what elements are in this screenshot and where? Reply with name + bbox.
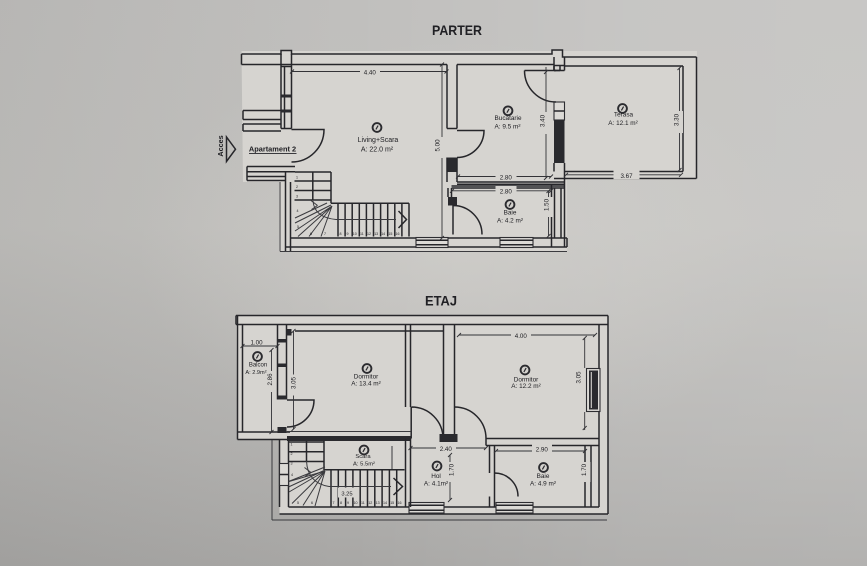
svg-text:4.00: 4.00 bbox=[515, 333, 528, 340]
svg-text:4: 4 bbox=[291, 473, 293, 477]
svg-text:4: 4 bbox=[297, 209, 299, 213]
svg-text:3.30: 3.30 bbox=[674, 113, 681, 126]
svg-text:Terasa: Terasa bbox=[614, 112, 634, 119]
svg-text:Hol: Hol bbox=[431, 473, 441, 480]
svg-text:7: 7 bbox=[324, 232, 326, 236]
svg-text:A: 9.5 m²: A: 9.5 m² bbox=[495, 124, 521, 131]
svg-text:2.40: 2.40 bbox=[440, 446, 453, 453]
svg-text:11: 11 bbox=[360, 232, 364, 236]
svg-text:10: 10 bbox=[354, 501, 358, 505]
svg-text:3: 3 bbox=[296, 195, 298, 199]
svg-text:14: 14 bbox=[381, 232, 385, 236]
svg-text:3.05: 3.05 bbox=[576, 371, 583, 384]
svg-text:2.80: 2.80 bbox=[500, 189, 513, 196]
svg-text:Apartament 2: Apartament 2 bbox=[249, 144, 296, 153]
svg-text:1.70: 1.70 bbox=[581, 463, 588, 476]
svg-text:2.86: 2.86 bbox=[267, 373, 274, 386]
svg-text:2: 2 bbox=[296, 185, 298, 189]
svg-text:A: 12.1 m²: A: 12.1 m² bbox=[608, 120, 637, 127]
svg-text:ETAJ: ETAJ bbox=[425, 293, 457, 309]
svg-text:4.40: 4.40 bbox=[364, 70, 377, 77]
svg-text:14: 14 bbox=[383, 501, 387, 505]
svg-text:1: 1 bbox=[296, 176, 298, 180]
svg-text:A: 5.5m²: A: 5.5m² bbox=[353, 461, 375, 467]
svg-text:A: 13.4 m²: A: 13.4 m² bbox=[351, 381, 380, 388]
svg-text:5: 5 bbox=[297, 225, 299, 229]
svg-text:Scara: Scara bbox=[355, 454, 371, 460]
svg-text:15: 15 bbox=[388, 232, 392, 236]
svg-text:A: 12.2 m²: A: 12.2 m² bbox=[511, 383, 540, 390]
svg-text:A: 22.0 m²: A: 22.0 m² bbox=[361, 147, 394, 154]
svg-text:12: 12 bbox=[368, 501, 372, 505]
svg-text:2: 2 bbox=[291, 452, 293, 456]
svg-text:1.00: 1.00 bbox=[250, 339, 263, 346]
svg-text:5.00: 5.00 bbox=[435, 139, 442, 152]
svg-text:A: 2.9m²: A: 2.9m² bbox=[245, 370, 266, 376]
svg-text:3.40: 3.40 bbox=[540, 114, 547, 127]
svg-text:PARTER: PARTER bbox=[432, 22, 482, 38]
svg-text:5: 5 bbox=[297, 501, 299, 505]
svg-text:3.05: 3.05 bbox=[291, 376, 298, 389]
svg-text:1.50: 1.50 bbox=[544, 198, 551, 211]
svg-text:9: 9 bbox=[347, 232, 349, 236]
svg-text:Dormitor: Dormitor bbox=[354, 374, 379, 381]
svg-text:A: 4.1m²: A: 4.1m² bbox=[424, 481, 448, 488]
svg-text:Baie: Baie bbox=[537, 473, 550, 480]
svg-text:8: 8 bbox=[340, 501, 342, 505]
svg-text:Acces: Acces bbox=[216, 135, 225, 156]
svg-text:1.70: 1.70 bbox=[449, 463, 456, 476]
svg-text:1: 1 bbox=[291, 443, 293, 447]
svg-text:3.25: 3.25 bbox=[341, 492, 352, 498]
svg-text:9: 9 bbox=[347, 501, 349, 505]
svg-text:Baie: Baie bbox=[504, 210, 517, 217]
svg-text:3: 3 bbox=[291, 462, 293, 466]
svg-text:13: 13 bbox=[374, 232, 378, 236]
svg-text:16: 16 bbox=[396, 232, 400, 236]
svg-text:10: 10 bbox=[353, 232, 357, 236]
svg-text:6: 6 bbox=[310, 232, 312, 236]
svg-text:A: 4.2 m²: A: 4.2 m² bbox=[497, 218, 523, 225]
svg-text:13: 13 bbox=[376, 501, 380, 505]
svg-text:6: 6 bbox=[311, 501, 313, 505]
svg-text:7: 7 bbox=[333, 501, 335, 505]
svg-text:3.67: 3.67 bbox=[620, 173, 633, 180]
svg-text:Balcon: Balcon bbox=[249, 363, 267, 369]
svg-text:Bucatarie: Bucatarie bbox=[495, 115, 522, 122]
svg-text:15: 15 bbox=[390, 501, 394, 505]
svg-text:8: 8 bbox=[340, 232, 342, 236]
svg-text:2.80: 2.80 bbox=[500, 174, 513, 181]
svg-text:12: 12 bbox=[367, 232, 371, 236]
svg-text:2.90: 2.90 bbox=[536, 447, 549, 454]
svg-text:11: 11 bbox=[361, 501, 365, 505]
svg-text:16: 16 bbox=[398, 501, 402, 505]
svg-text:Living+Scara: Living+Scara bbox=[358, 137, 399, 144]
svg-text:A: 4.9 m²: A: 4.9 m² bbox=[530, 481, 556, 488]
